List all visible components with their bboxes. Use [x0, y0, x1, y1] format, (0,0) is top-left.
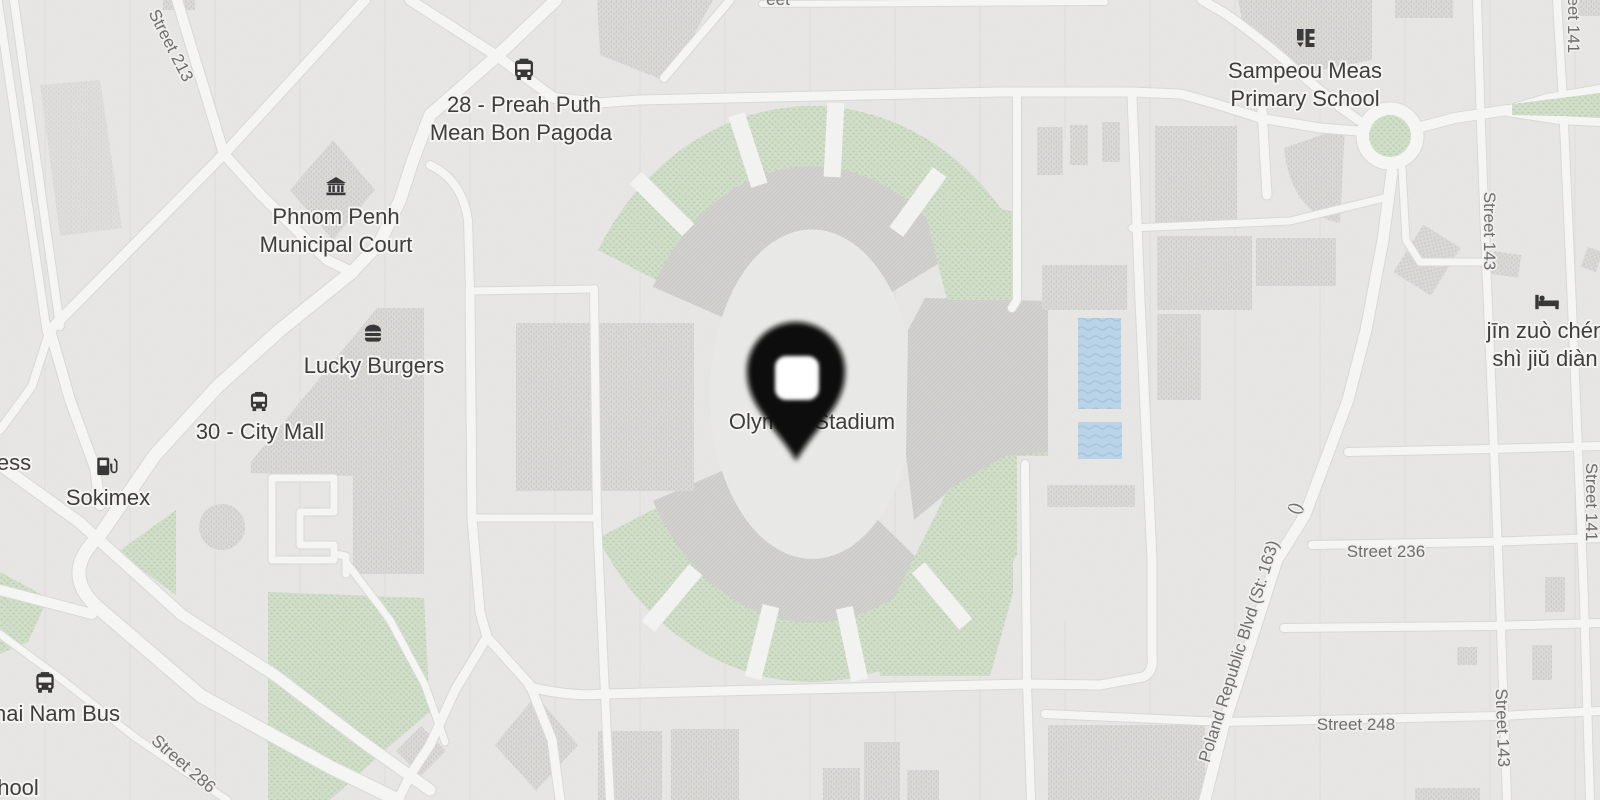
svg-text:30 - City Mall: 30 - City Mall — [196, 419, 324, 444]
svg-text:Municipal Court: Municipal Court — [260, 232, 413, 257]
svg-text:shì jiǔ diàn: shì jiǔ diàn — [1492, 346, 1597, 371]
svg-text:Primary School: Primary School — [1230, 86, 1379, 111]
svg-text:jīn zuò chéng: jīn zuò chéng — [1486, 318, 1600, 343]
svg-text:Lucky Burgers: Lucky Burgers — [304, 353, 445, 378]
svg-text:hool: hool — [0, 775, 39, 800]
svg-text:hai Nam Bus: hai Nam Bus — [0, 701, 120, 726]
svg-text:Sampeou Meas: Sampeou Meas — [1228, 58, 1382, 83]
svg-text:ess: ess — [0, 450, 31, 475]
svg-text:Phnom Penh: Phnom Penh — [272, 204, 399, 229]
svg-text:Street 143: Street 143 — [1480, 192, 1499, 270]
svg-text:Street 248: Street 248 — [1317, 715, 1395, 734]
svg-text:Street 143: Street 143 — [1492, 688, 1514, 767]
svg-text:eet: eet — [766, 0, 790, 9]
svg-text:Mean Bon Pagoda: Mean Bon Pagoda — [430, 120, 613, 145]
svg-text:Sokimex: Sokimex — [66, 485, 150, 510]
svg-text:Street 141: Street 141 — [1564, 0, 1583, 53]
svg-text:Street 141: Street 141 — [1582, 463, 1600, 541]
svg-text:28 - Preah Puth: 28 - Preah Puth — [447, 92, 601, 117]
svg-text:Street 236: Street 236 — [1347, 542, 1425, 561]
